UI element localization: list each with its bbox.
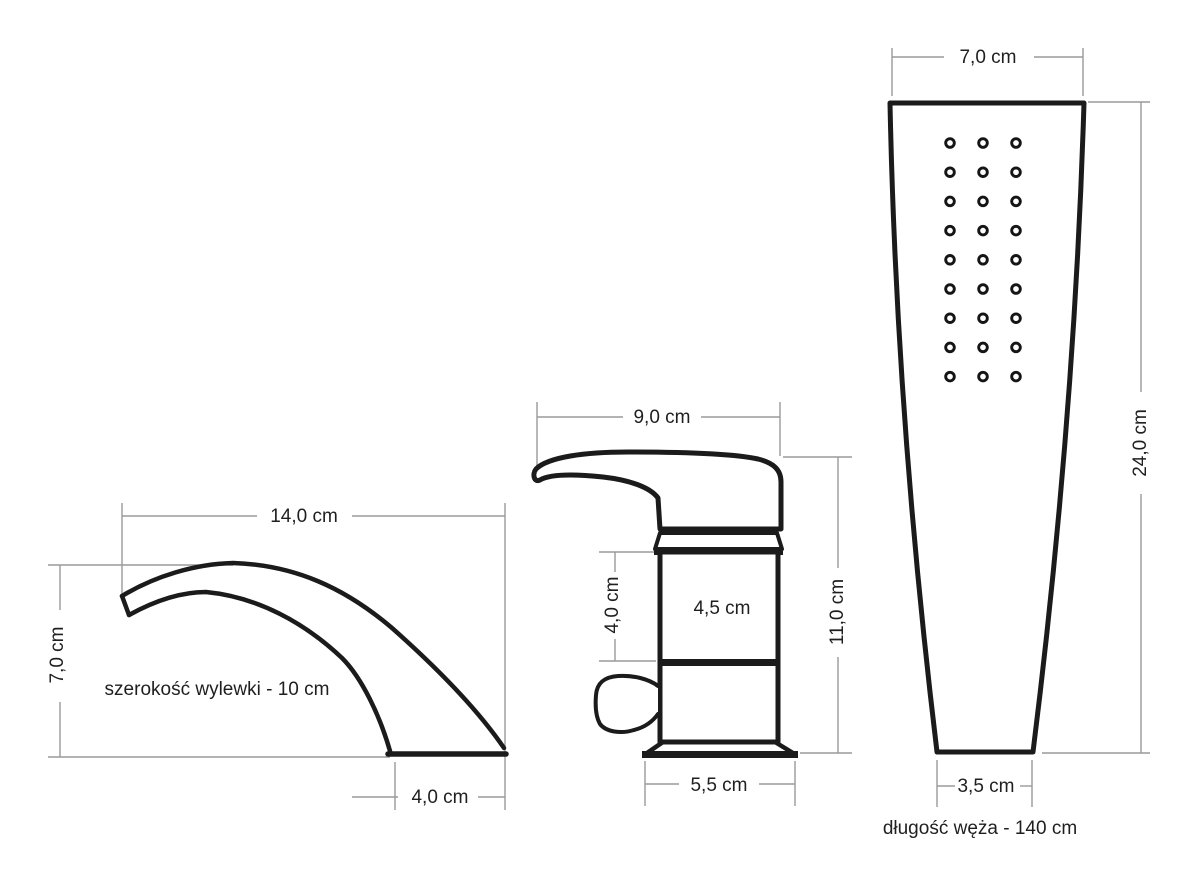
mixer-body-band — [660, 659, 778, 666]
nozzle-hole — [946, 226, 955, 235]
mixer-base-dimension-label: 5,5 cm — [690, 775, 747, 796]
mixer-cartridge-height-dimension-label: 4,0 cm — [602, 576, 623, 633]
mixer-width-dimension-label: 9,0 cm — [633, 407, 690, 428]
spout-width-dimension-label: 14,0 cm — [270, 506, 338, 527]
nozzle-hole — [979, 255, 988, 264]
nozzle-hole — [979, 168, 988, 177]
nozzle-hole — [1012, 226, 1021, 235]
nozzle-hole — [946, 168, 955, 177]
mixer-height-dimension-label: 11,0 cm — [827, 579, 848, 645]
spout-outline — [122, 563, 506, 754]
nozzle-hole — [946, 314, 955, 323]
nozzle-hole — [979, 226, 988, 235]
nozzle-hole — [946, 197, 955, 206]
nozzle-hole — [1012, 168, 1021, 177]
nozzle-hole — [979, 314, 988, 323]
mixer-figure: 9,0 cm 4,0 cm 4,5 cm 11,0 cm 5,5 cm — [534, 402, 852, 806]
shower-height-dimension-label: 24,0 cm — [1130, 409, 1151, 477]
nozzle-hole — [1012, 197, 1021, 206]
nozzle-hole — [1012, 285, 1021, 294]
mixer-body — [660, 552, 778, 742]
nozzle-hole — [946, 343, 955, 352]
shower-bottom-dimension-label: 3,5 cm — [957, 776, 1014, 797]
spout-width-note: szerokość wylewki - 10 cm — [105, 679, 330, 700]
nozzle-hole — [946, 372, 955, 381]
spout-figure: 14,0 cm 7,0 cm 4,0 cm szerokość wylewki … — [47, 503, 506, 810]
hose-length-note: długość węża - 140 cm — [883, 818, 1077, 839]
nozzle-hole — [1012, 255, 1021, 264]
nozzle-hole — [1012, 372, 1021, 381]
nozzle-hole — [979, 139, 988, 148]
mixer-collar — [655, 533, 782, 549]
nozzle-hole — [979, 285, 988, 294]
nozzle-hole — [1012, 314, 1021, 323]
spout-height-dimension-label: 7,0 cm — [47, 626, 68, 683]
nozzle-hole — [946, 139, 955, 148]
nozzle-hole — [979, 197, 988, 206]
spout-outlet-dimension-label: 4,0 cm — [411, 787, 468, 808]
spout-dimension-lines — [48, 503, 505, 810]
faucet-dimension-diagram: 14,0 cm 7,0 cm 4,0 cm szerokość wylewki … — [0, 0, 1194, 877]
technical-drawing-page: 14,0 cm 7,0 cm 4,0 cm szerokość wylewki … — [0, 0, 1194, 877]
nozzle-hole — [1012, 139, 1021, 148]
handshower-figure: 7,0 cm 24,0 cm 3,5 cm długość węża - 140… — [883, 47, 1151, 839]
nozzle-hole — [946, 255, 955, 264]
shower-width-dimension-label: 7,0 cm — [959, 47, 1016, 68]
nozzle-hole — [979, 372, 988, 381]
nozzle-hole — [946, 285, 955, 294]
nozzle-hole — [979, 343, 988, 352]
nozzle-hole — [1012, 343, 1021, 352]
mixer-body-width-dimension-label: 4,5 cm — [693, 598, 750, 619]
mixer-handle — [534, 452, 781, 529]
mixer-outlet — [596, 676, 658, 732]
